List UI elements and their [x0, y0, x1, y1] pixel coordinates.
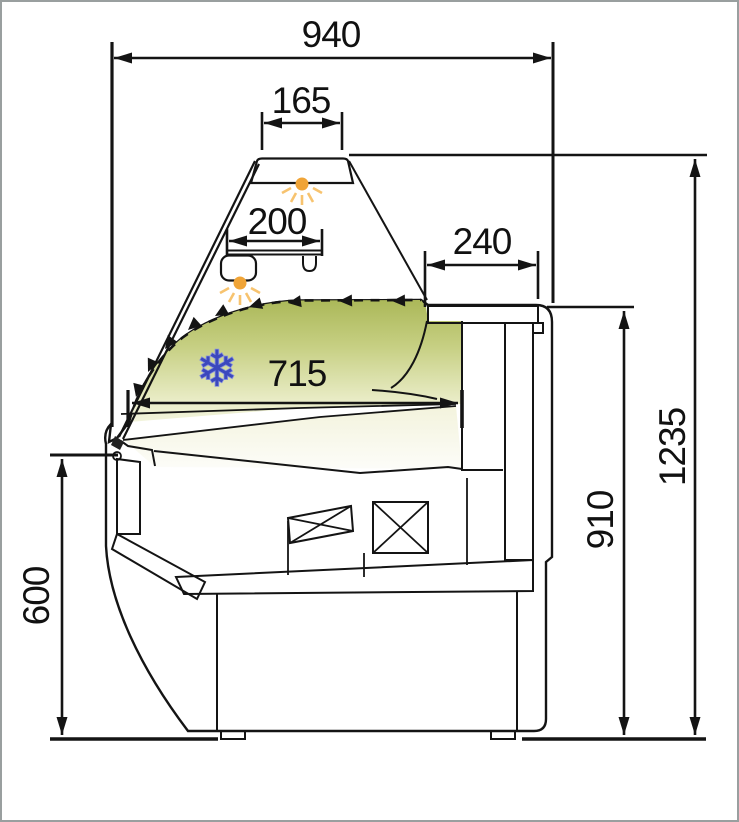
- dim-label-165: 165: [272, 80, 331, 121]
- dim-label-200: 200: [248, 201, 307, 242]
- dim-label-910: 910: [580, 490, 621, 549]
- dim-label-1235: 1235: [652, 407, 693, 486]
- dim-label-240: 240: [453, 221, 512, 262]
- dim-label-600: 600: [16, 566, 57, 625]
- snowflake-icon: ❄: [196, 340, 238, 398]
- dim-label-940: 940: [302, 14, 361, 55]
- cross-section-drawing: ❄ 940 165 200 240 715: [0, 0, 739, 822]
- dim-label-715: 715: [268, 353, 327, 394]
